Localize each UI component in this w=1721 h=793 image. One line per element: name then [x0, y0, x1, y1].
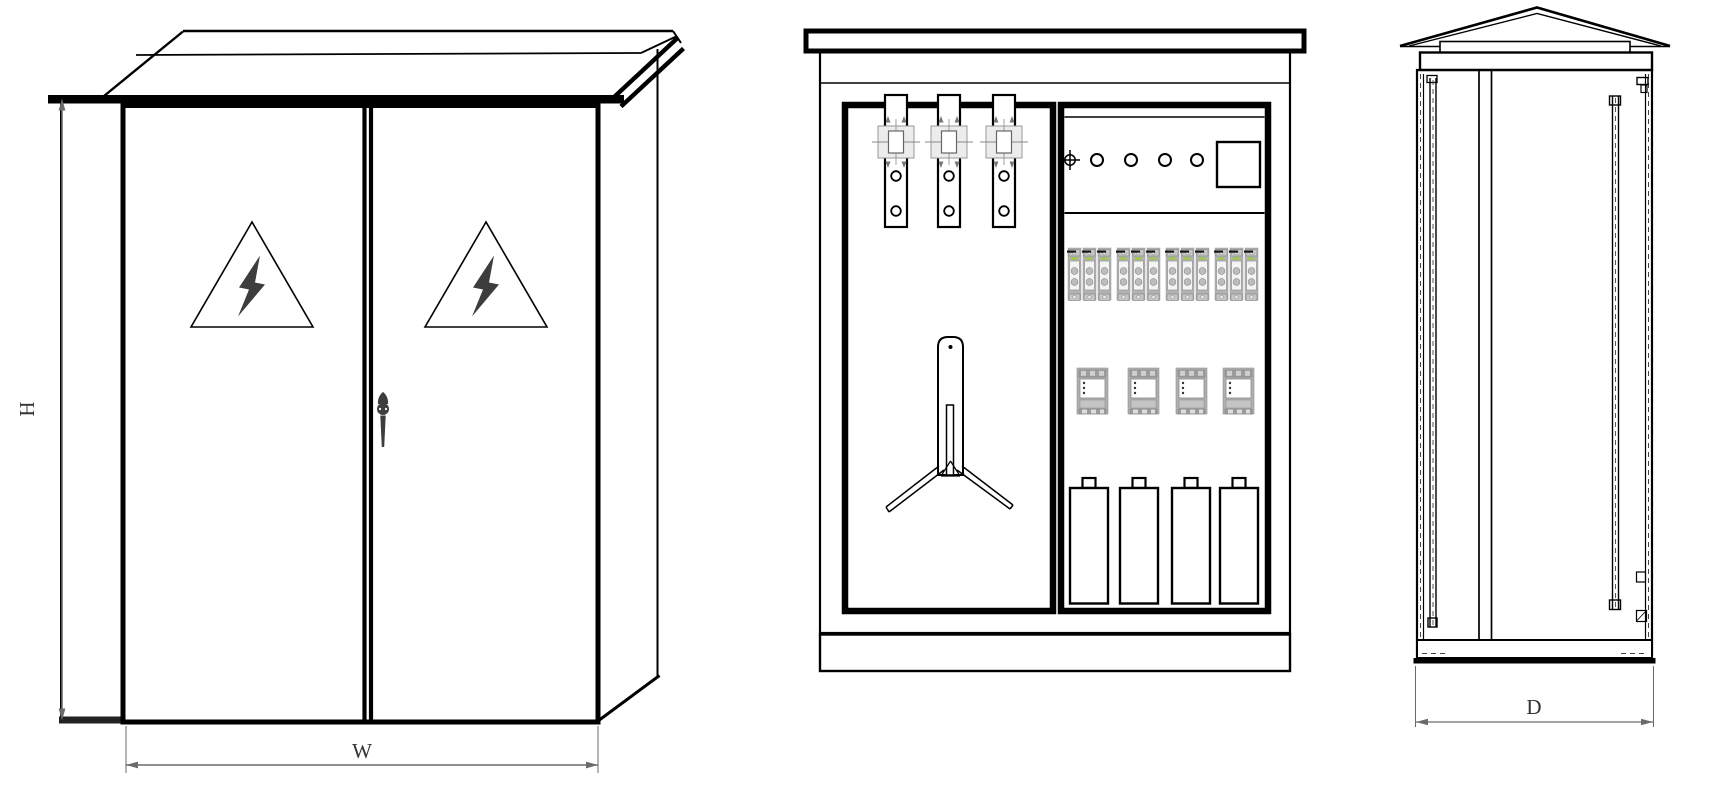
fuse-knob-upper	[1135, 268, 1142, 275]
busbar-hole-lower	[891, 206, 901, 216]
lock-handle-pin	[380, 416, 385, 448]
lock-pinhole-right	[385, 408, 387, 410]
breaker-terminal	[1236, 371, 1241, 376]
fuse-knob-lower	[1135, 279, 1142, 286]
breaker-terminal	[1142, 410, 1147, 414]
capacitor-body	[1220, 488, 1258, 604]
roof-front-top-line	[136, 53, 641, 55]
high-voltage-warning-icon	[425, 222, 547, 327]
lightning-bolt-icon	[472, 256, 499, 317]
latch-mid-plate	[1637, 572, 1646, 582]
capacitor-body	[1070, 488, 1108, 604]
molded-case-breaker	[1176, 368, 1207, 414]
fuse-knob-upper	[1150, 268, 1157, 275]
breaker-terminal	[1189, 371, 1194, 376]
breaker-terminal	[1141, 371, 1146, 376]
fuse-link-mark	[1244, 251, 1253, 253]
din-fuse-unit	[1131, 248, 1145, 301]
roof-outer-chevron	[1400, 8, 1670, 47]
front-face	[123, 106, 598, 723]
fuse-link-mark	[1116, 251, 1125, 253]
engineering-drawing-page: H W	[0, 0, 1721, 793]
meter-window	[1217, 142, 1260, 187]
rear-hinge-strip	[1610, 96, 1621, 610]
width-label: W	[352, 739, 372, 763]
indicator-light	[1091, 154, 1103, 166]
depth-label: D	[1526, 695, 1541, 719]
fuse-terminal-screw	[1103, 295, 1107, 299]
capacitor-unit	[1070, 478, 1108, 604]
breaker-dot	[1182, 392, 1184, 394]
capacitor-terminal	[1133, 478, 1146, 488]
din-fuse-unit	[1165, 248, 1179, 301]
fuse-knob-lower	[1086, 279, 1093, 286]
side-panel	[61, 97, 123, 722]
latch-hardware	[1637, 78, 1649, 622]
busbar-hole-lower	[999, 206, 1009, 216]
breaker-dot	[1229, 387, 1231, 389]
fuse-terminal-screw	[1171, 295, 1175, 299]
fuse-knob-lower	[1120, 279, 1127, 286]
din-fuse-unit	[1180, 248, 1194, 301]
fuse-terminal-screw	[1073, 295, 1077, 299]
clamp-block	[889, 131, 904, 153]
lock-cylinder	[377, 403, 389, 415]
fuse-knob-lower	[1233, 279, 1240, 286]
fuse-status-indicator	[1199, 258, 1206, 260]
fuse-terminal-screw	[1220, 295, 1224, 299]
base-bottom-edge	[1414, 658, 1656, 664]
door-lock	[377, 392, 389, 447]
side-body	[1417, 70, 1652, 660]
breaker-terminal	[1246, 410, 1250, 414]
capacitor-unit	[1220, 478, 1258, 604]
fuse-knob-upper	[1120, 268, 1127, 275]
fuse-knob-lower	[1248, 279, 1255, 286]
fuse-knob-upper	[1101, 268, 1108, 275]
fuse-terminal-screw	[1186, 295, 1190, 299]
breaker-terminal	[1237, 410, 1242, 414]
fuse-status-indicator	[1120, 258, 1127, 260]
fuse-knob-lower	[1184, 279, 1191, 286]
breaker-terminal	[1181, 410, 1186, 414]
fuse-knob-upper	[1218, 268, 1225, 275]
fuse-knob-upper	[1233, 268, 1240, 275]
breaker-terminal	[1245, 371, 1250, 376]
din-fuse-unit	[1146, 248, 1160, 301]
fuse-status-indicator	[1233, 258, 1240, 260]
indicator-light	[1159, 154, 1171, 166]
side-panel-bottom-edge	[59, 717, 123, 724]
din-fuse-unit	[1067, 248, 1081, 301]
fuse-link-mark	[1082, 251, 1091, 253]
fuse-knob-upper	[1071, 268, 1078, 275]
height-dimension: H	[15, 99, 65, 721]
fuse-status-indicator	[1184, 258, 1191, 260]
fuse-status-indicator	[1169, 258, 1176, 260]
capacitor-terminal	[1233, 478, 1246, 488]
stick-hole	[949, 345, 953, 349]
capacitor-terminal	[1083, 478, 1096, 488]
top-cap	[806, 31, 1304, 51]
breaker-handle-band	[1179, 400, 1204, 408]
breaker-terminal	[1090, 371, 1095, 376]
din-fuse-unit	[1244, 248, 1258, 301]
din-fuse-unit	[1116, 248, 1130, 301]
breaker-dot	[1182, 387, 1184, 389]
din-fuse-unit	[1082, 248, 1096, 301]
indicator-light	[1191, 154, 1203, 166]
side-view: D	[1400, 8, 1670, 728]
breaker-terminal	[1199, 410, 1203, 414]
fuse-link-mark	[1214, 251, 1223, 253]
breaker-terminal	[1133, 410, 1138, 414]
fuse-link-mark	[1067, 251, 1076, 253]
fuse-status-indicator	[1248, 258, 1255, 260]
breaker-dot	[1134, 392, 1136, 394]
fuse-status-indicator	[1218, 258, 1225, 260]
breaker-handle-band	[1226, 400, 1251, 408]
width-arrow-left	[126, 762, 138, 769]
fuse-status-indicator	[1086, 258, 1093, 260]
breaker-terminal	[1099, 371, 1104, 376]
base-plinth	[820, 635, 1290, 672]
fuse-status-indicator	[1101, 258, 1108, 260]
fuse-knob-upper	[1184, 268, 1191, 275]
busbar-hole-upper	[999, 171, 1009, 181]
molded-case-breaker	[1128, 368, 1159, 414]
depth-dimension: D	[1416, 666, 1654, 727]
breaker-dot	[1229, 392, 1231, 394]
fuse-knob-upper	[1086, 268, 1093, 275]
lightning-bolt-icon	[238, 256, 265, 317]
clamp-block	[997, 131, 1012, 153]
fuse-knob-lower	[1150, 279, 1157, 286]
breaker-dot	[1229, 382, 1231, 384]
fuse-knob-upper	[1199, 268, 1206, 275]
fuse-status-indicator	[1135, 258, 1142, 260]
fuse-link-mark	[1097, 251, 1106, 253]
breaker-terminal	[1228, 410, 1233, 414]
fuse-terminal-screw	[1122, 295, 1126, 299]
fuse-link-mark	[1229, 251, 1238, 253]
fuse-knob-lower	[1199, 279, 1206, 286]
breaker-terminal	[1091, 410, 1096, 414]
breaker-terminal	[1151, 410, 1155, 414]
fuse-knob-upper	[1248, 268, 1255, 275]
din-fuse-unit	[1195, 248, 1209, 301]
breaker-dot	[1083, 392, 1085, 394]
lock-pinhole-left	[379, 408, 381, 410]
base-channel	[1417, 640, 1652, 658]
busbar-hole-upper	[944, 171, 954, 181]
height-label: H	[15, 401, 39, 416]
roof-right-slant-outer	[612, 38, 679, 100]
high-voltage-warning-icon	[191, 222, 313, 327]
fuse-status-indicator	[1150, 258, 1157, 260]
breaker-dot	[1083, 387, 1085, 389]
width-arrow-right	[586, 762, 598, 769]
fuse-knob-lower	[1169, 279, 1176, 286]
breaker-dot	[1083, 382, 1085, 384]
bottom-right-slant	[598, 676, 660, 722]
depth-arrow-left	[1416, 719, 1428, 725]
breaker-terminal	[1227, 371, 1232, 376]
fuse-link-mark	[1195, 251, 1204, 253]
breaker-dot	[1182, 382, 1184, 384]
front-door-edge	[1427, 76, 1437, 628]
breaker-handle-band	[1080, 400, 1105, 408]
fuse-terminal-screw	[1250, 295, 1254, 299]
fuse-link-mark	[1180, 251, 1189, 253]
capacitor-body	[1172, 488, 1210, 604]
latch-top-plate	[1637, 78, 1648, 85]
din-fuse-unit	[1097, 248, 1111, 301]
fuse-terminal-screw	[1152, 295, 1156, 299]
fuse-terminal-screw	[1201, 295, 1205, 299]
molded-case-breaker	[1077, 368, 1108, 414]
roof-under-plate	[1440, 42, 1630, 53]
breaker-terminal	[1180, 371, 1185, 376]
roof-eave-line	[48, 95, 624, 104]
width-dimension: W	[126, 726, 598, 773]
capacitor-body	[1120, 488, 1158, 604]
fuse-link-mark	[1146, 251, 1155, 253]
fuse-knob-lower	[1071, 279, 1078, 286]
breaker-terminal	[1081, 371, 1086, 376]
breaker-terminal	[1132, 371, 1137, 376]
fuse-terminal-screw	[1088, 295, 1092, 299]
din-fuse-unit	[1214, 248, 1228, 301]
molded-case-breaker	[1223, 368, 1254, 414]
fuse-knob-lower	[1101, 279, 1108, 286]
fuse-status-indicator	[1071, 258, 1078, 260]
internal-layout-view	[806, 31, 1304, 671]
lock-knob	[378, 392, 388, 404]
breaker-terminal	[1190, 410, 1195, 414]
fuse-link-mark	[1131, 251, 1140, 253]
capacitor-unit	[1120, 478, 1158, 604]
breaker-handle-band	[1131, 400, 1156, 408]
front-exterior-view: H W	[15, 31, 684, 773]
roof-right-slant-inner	[621, 49, 684, 107]
fuse-terminal-screw	[1235, 295, 1239, 299]
fuse-terminal-screw	[1137, 295, 1141, 299]
fuse-knob-upper	[1169, 268, 1176, 275]
latch-bottom-diagonal	[1637, 611, 1646, 621]
roof-left-slant	[104, 32, 183, 97]
capacitor-unit	[1172, 478, 1210, 604]
depth-arrow-right	[1641, 719, 1653, 725]
busbar-hole-lower	[944, 206, 954, 216]
breaker-terminal	[1100, 410, 1104, 414]
fuse-link-mark	[1165, 251, 1174, 253]
busbar-hole-upper	[891, 171, 901, 181]
din-fuse-unit	[1229, 248, 1243, 301]
breaker-terminal	[1150, 371, 1155, 376]
clamp-block	[942, 131, 957, 153]
capacitor-terminal	[1185, 478, 1198, 488]
breaker-dot	[1134, 382, 1136, 384]
top-rail	[1420, 53, 1652, 71]
cabinet-three-view-drawing: H W	[0, 0, 1721, 793]
breaker-terminal	[1198, 371, 1203, 376]
incoming-busbars	[872, 95, 1028, 227]
fuse-knob-lower	[1218, 279, 1225, 286]
breaker-dot	[1134, 387, 1136, 389]
breaker-terminal	[1082, 410, 1087, 414]
indicator-light	[1125, 154, 1137, 166]
